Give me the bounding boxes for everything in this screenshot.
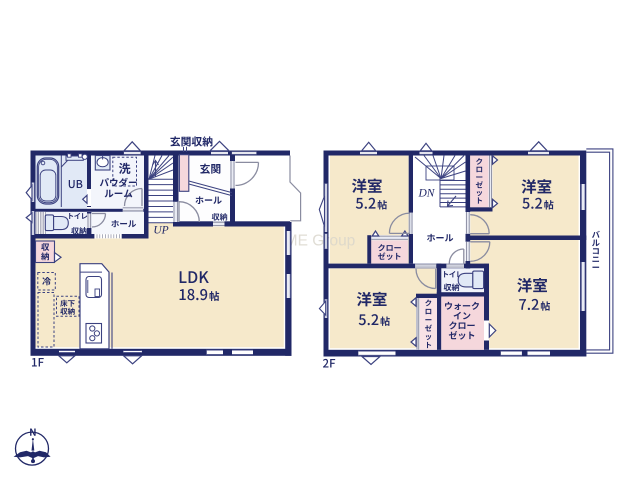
svg-text:DN: DN [418,187,436,199]
svg-text:UP: UP [153,224,168,236]
svg-text:ME Group: ME Group [285,233,356,250]
